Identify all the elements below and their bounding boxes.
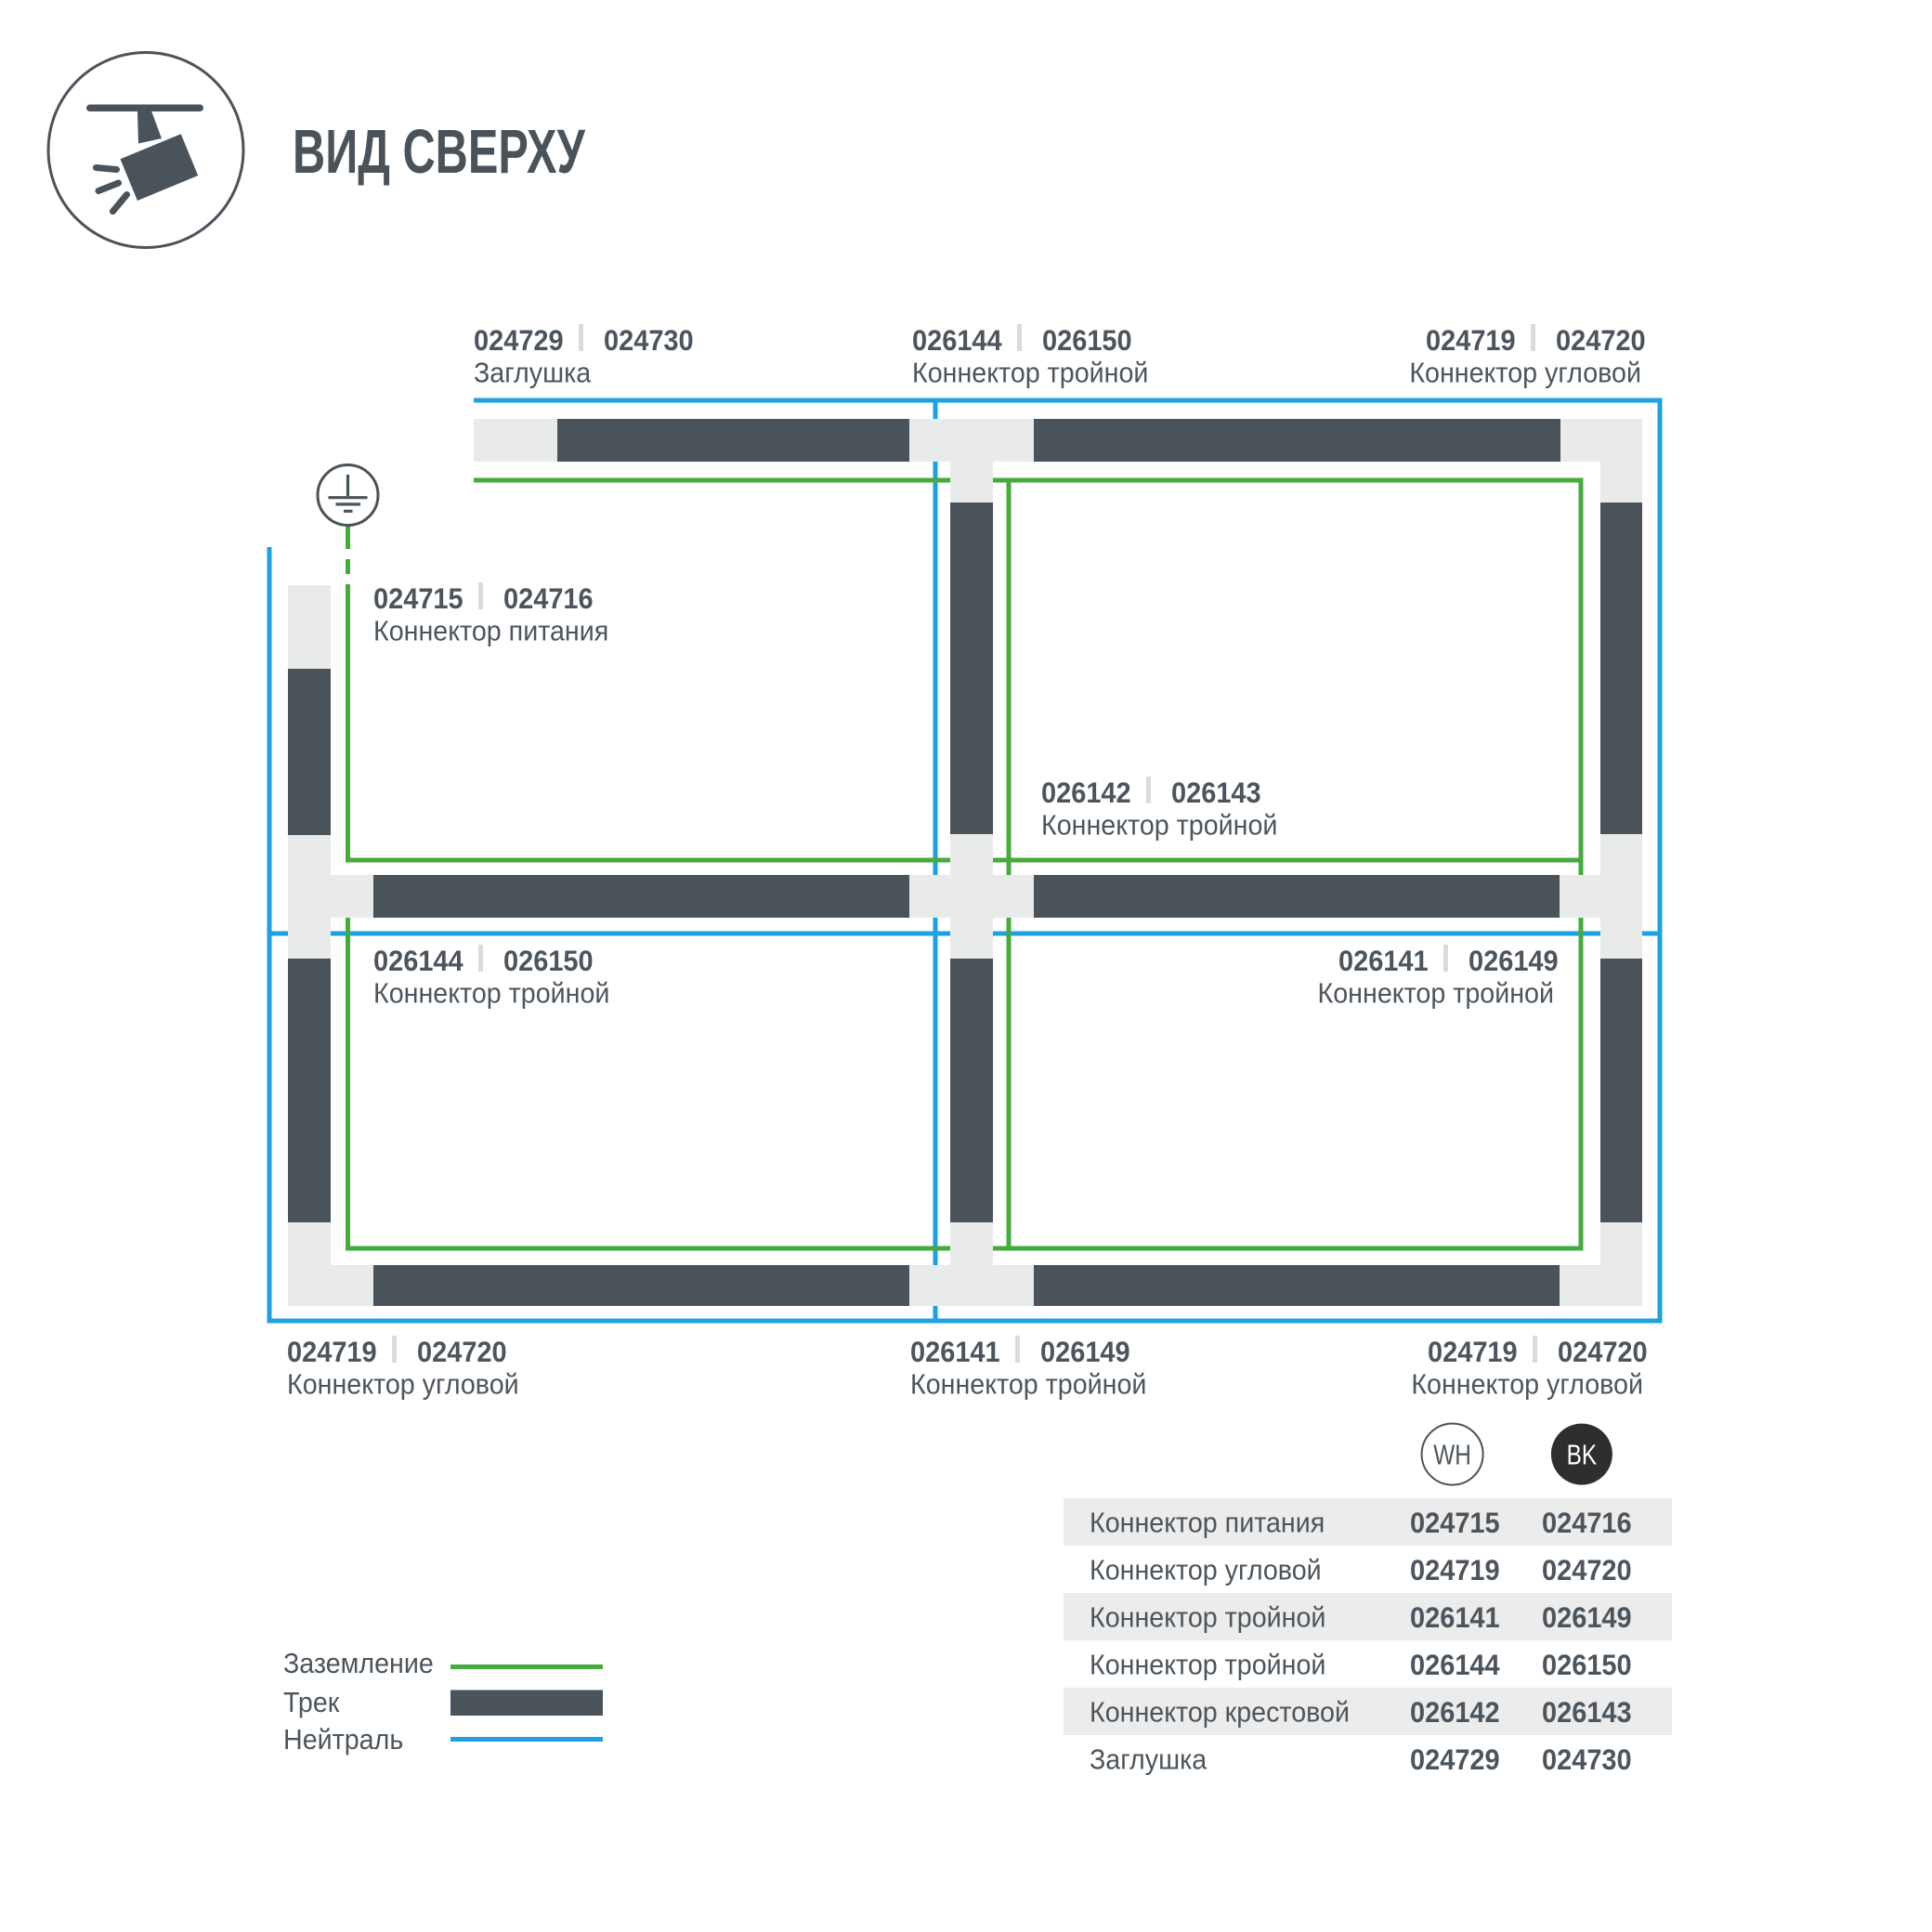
svg-text:026142: 026142	[1041, 777, 1131, 809]
svg-text:Коннектор питания: Коннектор питания	[1090, 1508, 1325, 1539]
svg-text:Коннектор тройной: Коннектор тройной	[1090, 1650, 1325, 1681]
svg-text:024729: 024729	[1410, 1744, 1500, 1776]
svg-text:026141: 026141	[910, 1337, 1000, 1368]
svg-text:024730: 024730	[604, 325, 694, 357]
svg-text:026143: 026143	[1542, 1697, 1632, 1729]
svg-text:024720: 024720	[1558, 1337, 1648, 1368]
svg-text:Заземление: Заземление	[283, 1648, 434, 1679]
svg-text:Коннектор тройной: Коннектор тройной	[373, 978, 609, 1010]
svg-text:026149: 026149	[1040, 1337, 1130, 1368]
svg-text:Трек: Трек	[283, 1687, 340, 1718]
svg-text:026141: 026141	[1410, 1602, 1500, 1634]
svg-text:Коннектор тройной: Коннектор тройной	[1318, 978, 1554, 1010]
svg-text:024719: 024719	[1410, 1555, 1500, 1586]
svg-text:024729: 024729	[474, 325, 564, 357]
svg-text:026143: 026143	[1171, 777, 1261, 809]
svg-text:026144: 026144	[373, 946, 463, 977]
svg-text:Коннектор тройной: Коннектор тройной	[1090, 1602, 1325, 1634]
svg-text:026144: 026144	[912, 325, 1002, 357]
svg-text:026150: 026150	[1542, 1650, 1632, 1681]
svg-text:Коннектор угловой: Коннектор угловой	[1411, 1369, 1643, 1401]
svg-text:Коннектор крестовой: Коннектор крестовой	[1090, 1697, 1350, 1729]
svg-text:024719: 024719	[1426, 325, 1516, 357]
svg-text:026150: 026150	[503, 946, 594, 977]
svg-text:BK: BK	[1567, 1439, 1598, 1470]
svg-text:WH: WH	[1433, 1439, 1471, 1470]
svg-text:Заглушка: Заглушка	[1090, 1744, 1207, 1776]
svg-text:026142: 026142	[1410, 1697, 1500, 1729]
svg-text:Заглушка: Заглушка	[474, 358, 592, 389]
svg-text:024730: 024730	[1542, 1744, 1632, 1776]
svg-text:Коннектор угловой: Коннектор угловой	[1409, 358, 1641, 389]
svg-text:024719: 024719	[1428, 1337, 1518, 1368]
svg-text:024720: 024720	[1542, 1555, 1632, 1586]
svg-text:024715: 024715	[373, 583, 463, 615]
svg-text:026141: 026141	[1338, 946, 1429, 977]
svg-text:024719: 024719	[287, 1337, 377, 1368]
svg-text:Коннектор тройной: Коннектор тройной	[912, 358, 1148, 389]
svg-text:026149: 026149	[1469, 946, 1559, 977]
svg-text:ВИД СВЕРХУ: ВИД СВЕРХУ	[293, 118, 585, 187]
svg-text:Коннектор питания: Коннектор питания	[373, 616, 608, 647]
svg-text:026144: 026144	[1410, 1650, 1500, 1681]
svg-text:Коннектор тройной: Коннектор тройной	[910, 1369, 1146, 1401]
svg-text:Нейтраль: Нейтраль	[283, 1724, 403, 1756]
svg-text:026149: 026149	[1542, 1602, 1632, 1634]
svg-text:Коннектор тройной: Коннектор тройной	[1041, 810, 1277, 842]
svg-text:026150: 026150	[1042, 325, 1132, 357]
svg-text:024720: 024720	[1556, 325, 1646, 357]
svg-text:024716: 024716	[1542, 1508, 1632, 1539]
svg-text:Коннектор угловой: Коннектор угловой	[287, 1369, 519, 1401]
svg-text:Коннектор угловой: Коннектор угловой	[1090, 1555, 1322, 1586]
svg-text:024715: 024715	[1410, 1508, 1500, 1539]
svg-text:024720: 024720	[417, 1337, 507, 1368]
svg-text:024716: 024716	[503, 583, 594, 615]
